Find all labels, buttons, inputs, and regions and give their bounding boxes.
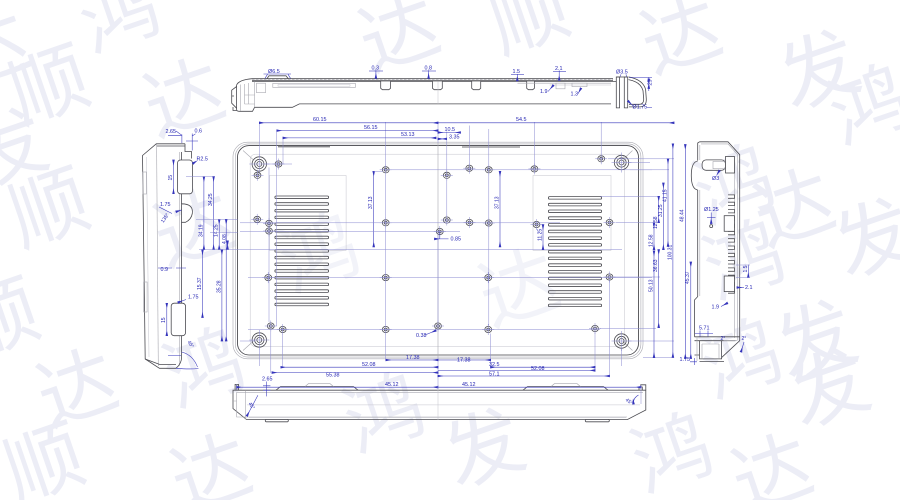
svg-text:10.5: 10.5 bbox=[445, 127, 456, 133]
svg-text:1.3: 1.3 bbox=[571, 92, 579, 98]
svg-text:1.9: 1.9 bbox=[540, 89, 548, 95]
svg-text:Ø3: Ø3 bbox=[712, 176, 719, 182]
svg-text:45.12: 45.12 bbox=[385, 382, 399, 388]
svg-text:11.25: 11.25 bbox=[537, 229, 543, 241]
svg-text:12.58: 12.58 bbox=[648, 234, 654, 247]
svg-text:3.35: 3.35 bbox=[449, 135, 460, 141]
svg-text:37.13: 37.13 bbox=[368, 196, 374, 209]
svg-text:14.25: 14.25 bbox=[214, 224, 220, 237]
svg-text:45.37: 45.37 bbox=[685, 271, 691, 284]
svg-text:2.1: 2.1 bbox=[745, 285, 753, 291]
svg-text:2°: 2° bbox=[721, 336, 726, 342]
svg-text:54.5: 54.5 bbox=[516, 117, 527, 123]
svg-text:4.08: 4.08 bbox=[222, 234, 228, 244]
svg-text:17.38: 17.38 bbox=[406, 355, 420, 361]
svg-text:48.44: 48.44 bbox=[680, 209, 686, 222]
svg-text:15.37: 15.37 bbox=[197, 277, 203, 290]
svg-text:57.1: 57.1 bbox=[489, 371, 500, 377]
svg-text:5.71: 5.71 bbox=[699, 325, 710, 331]
svg-text:32.5: 32.5 bbox=[489, 362, 500, 368]
svg-text:34.25: 34.25 bbox=[208, 193, 214, 206]
svg-text:1.5: 1.5 bbox=[743, 265, 749, 272]
svg-text:2.65: 2.65 bbox=[166, 129, 177, 135]
svg-text:60.15: 60.15 bbox=[313, 117, 327, 123]
svg-text:2.65: 2.65 bbox=[262, 377, 273, 383]
svg-text:1.5: 1.5 bbox=[513, 69, 521, 75]
svg-text:1.9: 1.9 bbox=[712, 305, 720, 311]
svg-text:0.85: 0.85 bbox=[451, 237, 462, 243]
svg-text:1.75: 1.75 bbox=[188, 294, 199, 300]
svg-text:37.13: 37.13 bbox=[494, 196, 500, 209]
svg-text:0.8: 0.8 bbox=[425, 66, 433, 72]
svg-text:52.08: 52.08 bbox=[362, 362, 376, 368]
svg-text:35.28: 35.28 bbox=[216, 280, 222, 293]
svg-text:100.31: 100.31 bbox=[667, 244, 673, 260]
svg-text:Ø1.75: Ø1.75 bbox=[633, 105, 648, 111]
svg-text:55.38: 55.38 bbox=[326, 372, 340, 378]
svg-text:17.38: 17.38 bbox=[457, 357, 471, 363]
svg-text:53.13: 53.13 bbox=[401, 132, 415, 138]
svg-text:56.15: 56.15 bbox=[364, 125, 378, 131]
svg-text:Ø1.25: Ø1.25 bbox=[704, 207, 719, 213]
svg-text:34.19: 34.19 bbox=[198, 224, 204, 237]
svg-text:15: 15 bbox=[168, 175, 174, 181]
svg-text:52.08: 52.08 bbox=[531, 366, 545, 372]
svg-text:2.1: 2.1 bbox=[555, 66, 563, 72]
svg-text:45.12: 45.12 bbox=[462, 382, 476, 388]
svg-text:50.13: 50.13 bbox=[648, 279, 654, 292]
svg-text:1.75: 1.75 bbox=[160, 202, 171, 208]
svg-text:0.6: 0.6 bbox=[195, 129, 203, 135]
svg-text:0.3: 0.3 bbox=[372, 66, 380, 72]
svg-text:2°: 2° bbox=[742, 336, 747, 342]
svg-text:1.75: 1.75 bbox=[680, 357, 691, 363]
svg-text:0.38: 0.38 bbox=[416, 333, 427, 339]
svg-text:15: 15 bbox=[161, 317, 167, 323]
svg-text:R2.5: R2.5 bbox=[197, 156, 208, 162]
svg-text:.25: .25 bbox=[648, 79, 654, 86]
